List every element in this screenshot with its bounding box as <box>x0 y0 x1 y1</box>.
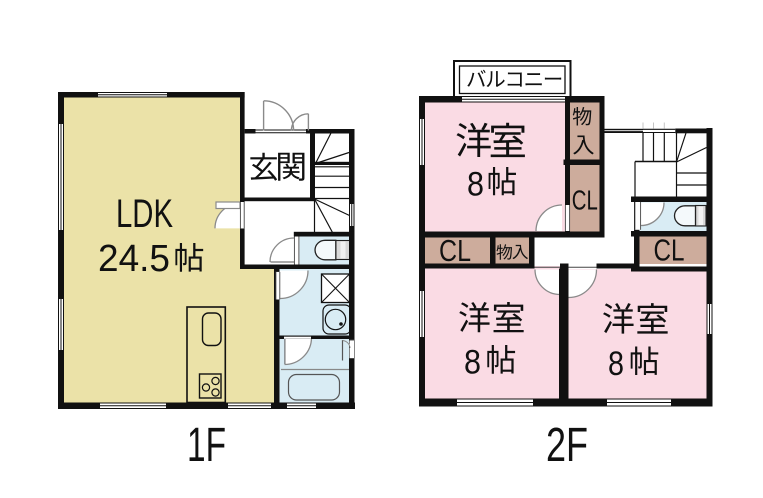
svg-text:8: 8 <box>467 165 484 203</box>
svg-text:CL: CL <box>654 233 685 268</box>
svg-text:CL: CL <box>439 233 471 268</box>
svg-text:8: 8 <box>608 345 624 383</box>
svg-text:LDK: LDK <box>116 192 173 236</box>
svg-text:24.5: 24.5 <box>98 238 170 280</box>
svg-text:2F: 2F <box>546 419 588 472</box>
svg-text:8: 8 <box>464 344 481 382</box>
svg-text:CL: CL <box>572 185 598 216</box>
svg-text:1F: 1F <box>187 419 226 472</box>
